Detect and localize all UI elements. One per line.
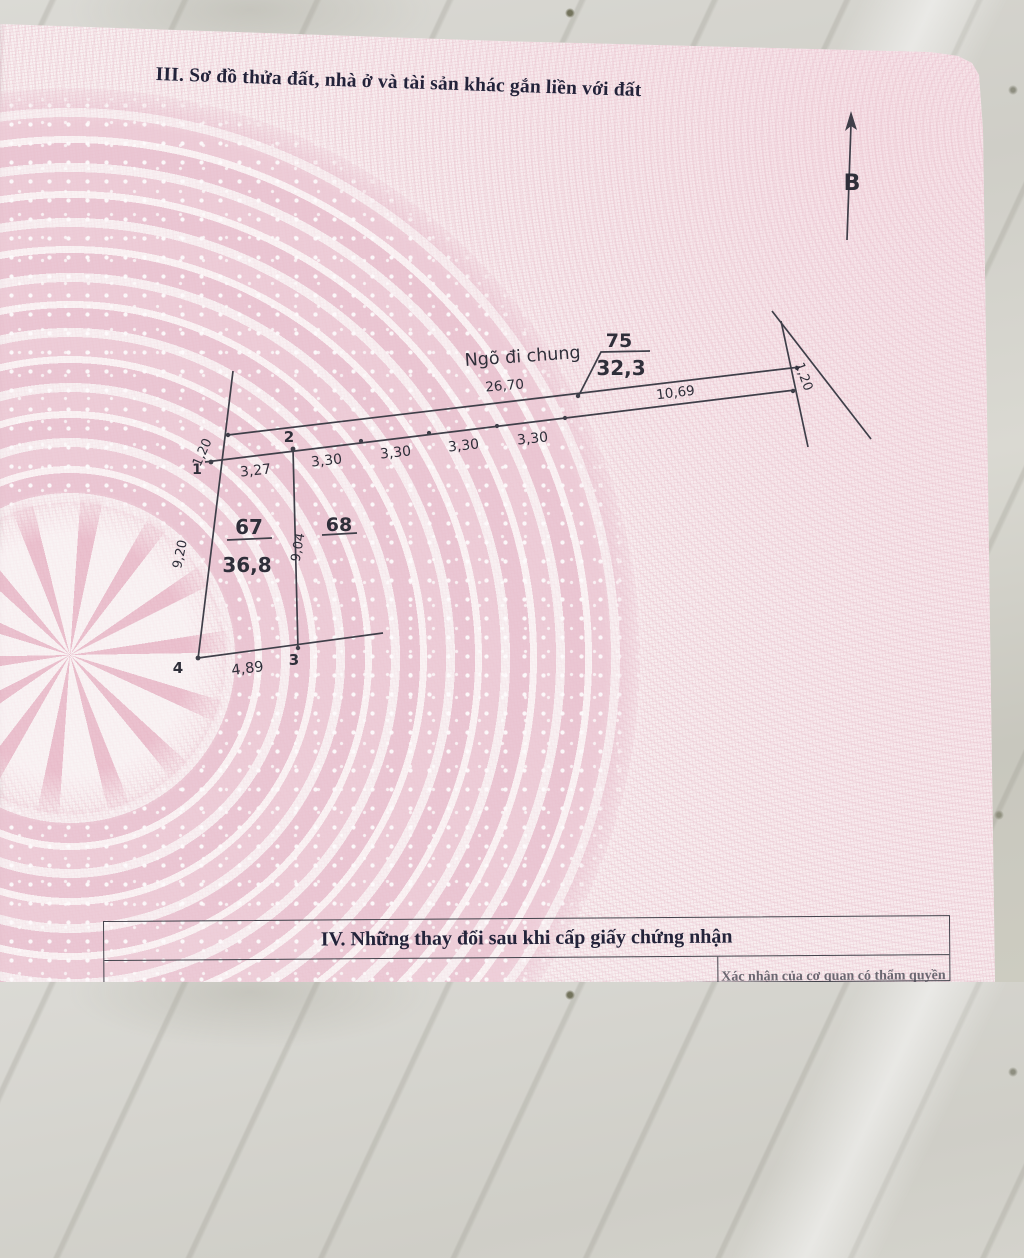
section4-title: IV. Những thay đổi sau khi cấp giấy chứn… xyxy=(104,916,949,961)
dim-front-segment-1: 3,27 xyxy=(239,461,272,480)
boundary-line-left xyxy=(198,371,233,659)
boundary-line-top-right xyxy=(772,311,871,439)
dim-bottom-edge: 4,89 xyxy=(231,659,265,679)
corner-point-1: 1 xyxy=(192,462,202,478)
corner-point-2: 2 xyxy=(284,428,294,446)
parcel-67-number: 67 xyxy=(235,515,263,539)
vertex-dots xyxy=(196,366,800,661)
alley-parcel-area: 32,3 xyxy=(596,356,645,380)
corner-point-4: 4 xyxy=(173,659,183,677)
parcel-67-area: 36,8 xyxy=(222,553,271,577)
dim-top-left: 26,70 xyxy=(485,376,525,395)
corner-point-3: 3 xyxy=(289,651,299,669)
section4-box: IV. Những thay đổi sau khi cấp giấy chứn… xyxy=(103,915,950,987)
dim-front-segment-2: 3,30 xyxy=(310,451,343,470)
dim-middle-edge: 9,04 xyxy=(289,532,309,563)
section4-right-column-header: Xác nhận của cơ quan có thẩm quyền xyxy=(717,968,949,986)
certificate-paper: III. Sơ đồ thửa đất, nhà ở và tài sản kh… xyxy=(0,0,1024,982)
parcel-sketch: B Ngõ đi chung 75 32,3 26,70 10,69 1,20 xyxy=(0,0,1024,982)
dim-left-edge: 9,20 xyxy=(170,539,191,570)
dim-top-right: 10,69 xyxy=(655,383,695,404)
alley-label: Ngõ đi chung xyxy=(464,343,581,371)
parcel-67-underline xyxy=(227,538,272,540)
dim-front-segment-4: 3,30 xyxy=(447,436,480,455)
photo-of-land-certificate: { "document": { "section3_title": "III. … xyxy=(0,0,1024,982)
dim-front-segment-3: 3,30 xyxy=(379,443,412,462)
dim-front-segment-5: 3,30 xyxy=(516,429,549,448)
alley-parcel-number: 75 xyxy=(606,330,632,352)
north-label: B xyxy=(844,171,861,196)
section4-table: Xác nhận của cơ quan có thẩm quyền xyxy=(104,955,949,985)
north-arrow: B xyxy=(844,111,861,240)
